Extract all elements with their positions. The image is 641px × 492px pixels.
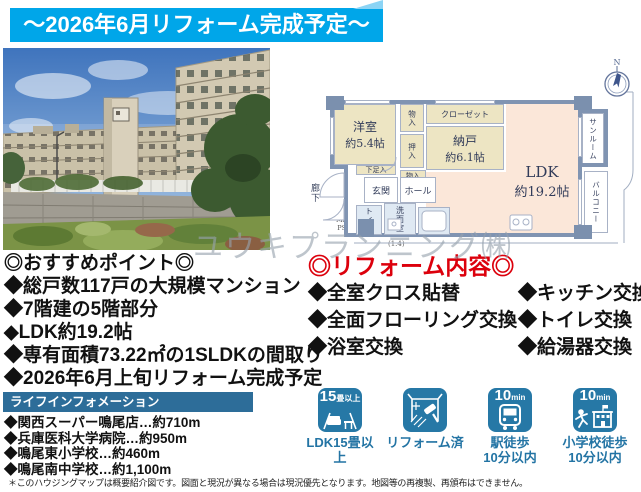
room-sunroom: サンルーム (582, 113, 604, 165)
wall-left-lower (344, 165, 348, 237)
reform-item: ◆全面フローリング交換 (308, 307, 518, 334)
building-photo-art (3, 48, 270, 250)
window-western-top (345, 100, 390, 104)
badge-label: 駅徒歩 10分以内 (470, 435, 550, 465)
reform-item: ◆給湯器交換 (518, 334, 641, 361)
wall-sunroom-right (604, 109, 608, 167)
badge-caption-big: 10 (580, 388, 597, 404)
reform-item: ◆キッチン交換 (518, 280, 641, 307)
pillar-top-right (574, 96, 592, 110)
pillar-entrance (358, 219, 374, 237)
top-banner-text: 〜2026年6月リフォーム完成予定〜 (23, 12, 370, 37)
points-title: ◎おすすめポイント◎ (4, 252, 309, 275)
badge-caption-small: 畳以上 (336, 394, 360, 403)
points-section: ◎おすすめポイント◎ ◆総戸数117戸の大規模マンション ◆7階建の5階部分 ◆… (4, 252, 309, 390)
room-hall: ホール (400, 177, 436, 203)
furniture-art (318, 405, 362, 431)
point-item: ◆LDK約19.2帖 (4, 321, 309, 344)
room-western: 洋室 約5.4帖 (334, 104, 396, 165)
room-closet: クローゼット (426, 104, 504, 124)
train-art (488, 404, 532, 431)
room-entrance: 玄関 (364, 177, 398, 203)
badge-label: リフォーム済 (385, 435, 465, 450)
window-closet-top (435, 100, 495, 104)
reform-item: ◆全室クロス貼替 (308, 280, 518, 307)
lifeinfo-item: ◆関西スーパー鳴尾店…約710m (4, 415, 200, 431)
room-bathroom: 浴室 (418, 207, 450, 235)
school-art (573, 404, 617, 431)
badge-caption-big: 10 (495, 388, 512, 404)
footer-note: ＊このハウジングマップは概要紹介図です。図面と現況が異なる場合は現況優先となりま… (8, 476, 528, 489)
lifeinfo-item: ◆鳴尾東小学校…約460m (4, 446, 200, 462)
room-balcony: バルコニー (584, 171, 608, 233)
point-item: ◆2026年6月上旬リフォーム完成予定 (4, 367, 309, 390)
ldk-size: 約19.2帖 (492, 181, 592, 200)
ldk-name: LDK (492, 163, 592, 181)
reform-item: ◆浴室交換 (308, 334, 518, 361)
floorplan: 洋室 約5.4帖 物入 押入 クローゼット 納戸 約6.1帖 LDK 約19.2… (300, 57, 641, 257)
room-washroom: 洗面室 (384, 203, 416, 235)
building-photo (3, 48, 270, 250)
top-banner: 〜2026年6月リフォーム完成予定〜 (10, 8, 383, 42)
pillar-top-left (326, 96, 344, 110)
corridor-label: 廊下 (308, 183, 321, 203)
window-sunroom (578, 117, 582, 157)
banner-fold (353, 0, 383, 9)
compass-n: N (614, 58, 621, 67)
reform-title: ◎リフォーム内容◎ (308, 252, 638, 280)
lifeinfo-item: ◆兵庫医科大学病院…約950m (4, 431, 200, 447)
flyer-page: 〜2026年6月リフォーム完成予定〜 (0, 0, 641, 492)
badge-reformed: リフォーム済 (385, 388, 465, 450)
reform-art (403, 388, 447, 432)
window-western-left (330, 117, 334, 155)
badge-caption-small: min (511, 393, 525, 402)
badge-caption-small: min (596, 393, 610, 402)
room-storage-size: 約6.1帖 (445, 149, 485, 165)
train-icon: 10min (488, 388, 532, 432)
room-western-size: 約5.4帖 (345, 135, 385, 151)
point-item: ◆総戸数117戸の大規模マンション (4, 275, 309, 298)
compass-icon: N (605, 58, 629, 96)
badge-station: 10min 駅徒歩 10分以内 (470, 388, 550, 465)
reform-item: ◆トイレ交換 (518, 307, 641, 334)
plan-note: (1.4) (388, 240, 405, 248)
ldk-furniture-icon: 15畳以上 (318, 388, 362, 432)
lifeinfo-heading: ライフインフォメーション (3, 392, 253, 412)
school-walk-icon: 10min (573, 388, 617, 432)
badge-label: 小学校徒歩 10分以内 (555, 435, 635, 465)
reform-section: ◎リフォーム内容◎ ◆全室クロス貼替 ◆キッチン交換 ◆全面フローリング交換 ◆… (308, 252, 638, 361)
room-storage-top: 物入 (400, 104, 424, 132)
point-item: ◆7階建の5階部分 (4, 298, 309, 321)
pillar-bottom-right (574, 225, 592, 239)
lifeinfo-list: ◆関西スーパー鳴尾店…約710m ◆兵庫医科大学病院…約950m ◆鳴尾東小学校… (4, 415, 200, 477)
room-oshiire: 押入 (400, 134, 424, 168)
point-item: ◆専有面積73.22㎡の1SLDKの間取り (4, 344, 309, 367)
room-western-label: 洋室 (353, 118, 377, 135)
window-balcony (578, 179, 582, 225)
badge-school: 10min 小学校徒歩 10分以内 (555, 388, 635, 465)
badge-caption-big: 15 (320, 388, 337, 405)
reform-paint-icon (403, 388, 447, 432)
room-shoebox: 下足入 (356, 165, 396, 175)
room-ldk-label: LDK 約19.2帖 (492, 163, 592, 200)
room-storage-label: 納戸 (453, 132, 477, 149)
badge-label: LDK15畳以上 (300, 435, 380, 465)
badge-ldk15: 15畳以上 LDK15畳以上 (300, 388, 380, 465)
